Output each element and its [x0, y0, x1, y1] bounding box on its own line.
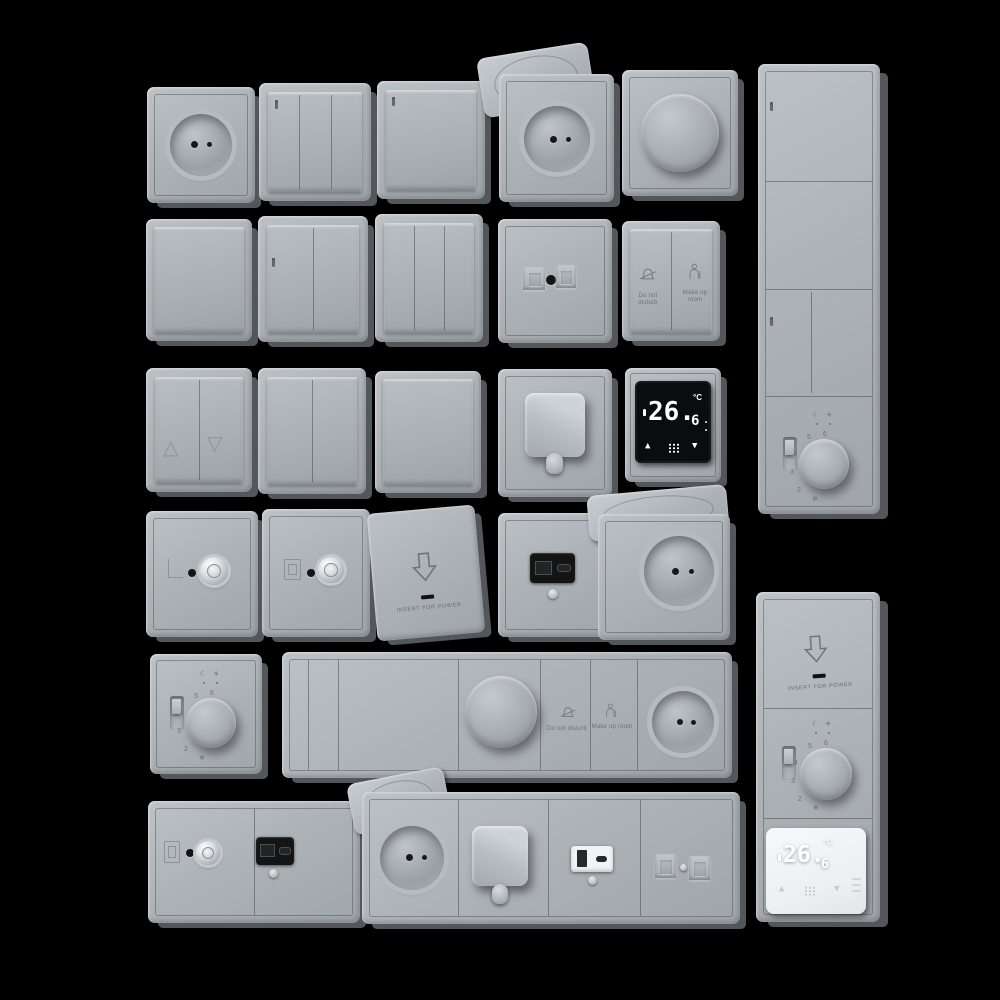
mode-dot: [828, 732, 830, 734]
night-mode-icon: ☾: [813, 411, 819, 419]
frost-icon: ❄: [812, 495, 818, 503]
make-up-room-icon: [686, 262, 704, 282]
dial-number: 4: [793, 451, 797, 458]
dial-thermostat-face: ☾ ☀ 6 5 4 3 2 ❄: [150, 660, 262, 770]
temperature-decimal: 6: [691, 413, 699, 429]
multi-gang-vertical-panel[interactable]: ☾ ☀ 6 5 4 3 2 ❄: [758, 64, 880, 514]
section-divider: [338, 660, 339, 770]
temp-up-button[interactable]: ▲: [645, 441, 650, 451]
dial-number: 4: [794, 760, 798, 767]
usb-module-white: [571, 846, 613, 872]
indicator-slot: [392, 97, 395, 106]
temperature-dial-knob[interactable]: [800, 748, 852, 800]
make-up-room-label: Make up room: [590, 724, 634, 731]
menu-dots-button[interactable]: [804, 886, 816, 896]
vent-slot: [852, 878, 861, 880]
do-not-disturb-label: Do not disturb: [545, 726, 589, 733]
section-divider: [308, 660, 309, 770]
temperature-dial-knob[interactable]: [799, 439, 849, 489]
rocker[interactable]: [386, 90, 476, 190]
indicator-slot: [275, 100, 278, 109]
make-up-room-label: Make up room: [676, 290, 714, 304]
dial-number: 2: [798, 796, 802, 803]
usb-c-port[interactable]: [279, 847, 291, 855]
temperature-decimal: 6: [821, 857, 829, 872]
dial-thermostat[interactable]: ☾ ☀ 6 5 4 3 2 ❄: [150, 654, 262, 774]
data-jack-port[interactable]: [689, 856, 710, 880]
socket-pin-hole: [406, 854, 413, 861]
rocker-divider: [811, 292, 812, 393]
switch-blank-1gang[interactable]: [146, 219, 252, 341]
shutter-up-icon: △: [163, 438, 178, 458]
status-dot: [705, 429, 707, 431]
dial-number: 5: [807, 434, 811, 441]
dial-number: 5: [194, 693, 198, 700]
section-divider: [254, 809, 255, 915]
square-marking: [284, 559, 301, 580]
data-jack-port[interactable]: [655, 854, 676, 878]
switch-3gang[interactable]: [375, 214, 483, 342]
usb-c-port[interactable]: [557, 564, 571, 572]
blank-plate[interactable]: [375, 371, 481, 493]
temp-down-button[interactable]: ▼: [692, 441, 697, 451]
digital-thermostat-white[interactable]: 26. 6 °C ▲ ▼: [766, 828, 866, 914]
dial-number: 6: [823, 431, 827, 438]
day-mode-icon: ☀: [826, 411, 832, 419]
socket-pin-hole: [566, 137, 571, 142]
digital-thermostat-black[interactable]: 26. 6 °C ▲ ▼: [625, 368, 721, 482]
dial-number: 3: [791, 778, 795, 785]
menu-dots-button[interactable]: [668, 443, 680, 453]
status-dot: [705, 421, 707, 423]
socket-pin-hole: [672, 568, 679, 575]
switch-2gang[interactable]: [258, 368, 366, 494]
insert-for-power-label: INSERT FOR POWER: [766, 680, 874, 694]
section-divider: [458, 800, 459, 916]
mode-dot: [816, 423, 818, 425]
multi-gang-horizontal-panel[interactable]: [362, 792, 740, 924]
night-mode-icon: ☾: [200, 670, 206, 678]
blank-cover: [383, 379, 473, 485]
data-jack-port[interactable]: [523, 267, 545, 290]
rocker-divider: [671, 232, 672, 330]
mode-dot: [203, 682, 205, 684]
data-jack-port[interactable]: [556, 265, 576, 288]
shutter-down-icon: ▽: [207, 434, 222, 454]
temperature-dial-knob[interactable]: [186, 698, 236, 748]
socket-pin-hole: [691, 720, 696, 725]
heating-flame-icon: [643, 409, 646, 416]
rocker-divider: [590, 660, 591, 770]
cable-outlet[interactable]: [498, 369, 612, 497]
rocker-divider: [414, 226, 415, 330]
socket-recess: [524, 106, 590, 172]
socket-recess: [652, 691, 714, 753]
switch-2gang[interactable]: [258, 216, 368, 342]
tv-sat-outlet[interactable]: [262, 509, 370, 637]
vent-slot: [852, 890, 861, 892]
square-marking: [164, 841, 180, 863]
do-not-disturb-label: Do not disturb: [629, 293, 667, 307]
screw: [588, 876, 597, 885]
socket-outlet[interactable]: [147, 87, 255, 203]
temperature-unit: °C: [824, 839, 832, 846]
dial-thermostat-section[interactable]: ☾ ☀ 6 5 4 3 2 ❄: [763, 401, 875, 511]
screw: [680, 864, 687, 871]
socket-pin-hole: [689, 569, 694, 574]
temperature-value: 26.: [648, 397, 695, 427]
rocker[interactable]: [268, 92, 362, 192]
dial-number: 4: [180, 710, 184, 717]
socket-outlet-lidded[interactable]: [499, 74, 614, 202]
temperature-unit: °C: [693, 393, 702, 402]
coax-hole[interactable]: [546, 275, 556, 285]
dial-number: 2: [184, 746, 188, 753]
cable-gland: [492, 884, 508, 904]
temp-up-button[interactable]: ▲: [779, 884, 784, 894]
section-divider: [458, 660, 459, 770]
f-connector[interactable]: [200, 557, 228, 585]
dial-number: 2: [797, 487, 801, 494]
section-divider: [540, 660, 541, 770]
dimmer-knob[interactable]: [641, 94, 719, 172]
rotary-dimmer[interactable]: [622, 70, 738, 196]
keycard-power-holder[interactable]: INSERT FOR POWER: [756, 594, 879, 710]
make-up-room-icon: [603, 702, 619, 720]
combo-tv-usb-plate[interactable]: [148, 801, 360, 923]
card-slot-led: [421, 594, 434, 599]
screw: [269, 869, 278, 878]
rocker-divider: [299, 95, 300, 189]
day-mode-icon: ☀: [213, 670, 219, 678]
usb-c-port[interactable]: [596, 856, 607, 862]
day-mode-icon: ☀: [825, 720, 831, 728]
cable-outlet-hood: [525, 393, 585, 457]
multi-gang-horizontal-panel[interactable]: Do not disturb Make up room: [282, 652, 732, 778]
section-divider: [766, 396, 872, 397]
frost-icon: ❄: [813, 804, 819, 812]
keycard-power-holder[interactable]: INSERT FOR POWER: [367, 505, 486, 642]
cable-gland: [546, 453, 563, 474]
section-divider: [766, 289, 872, 290]
temp-down-button[interactable]: ▼: [834, 884, 839, 894]
section-divider: [640, 800, 641, 916]
rocker-divider: [313, 228, 314, 330]
dial-number: 6: [824, 740, 828, 747]
indicator-slot: [272, 258, 275, 267]
usb-module: [530, 553, 575, 583]
dial-thermostat-section[interactable]: ☾ ☀ 6 5 4 3 2 ❄: [762, 710, 874, 820]
multi-gang-vertical-panel[interactable]: INSERT FOR POWER ☾ ☀ 6 5 4 3 2 ❄ 26. 6 °…: [756, 592, 880, 922]
usb-module: [256, 837, 294, 865]
heating-flame-icon: [778, 854, 781, 861]
tv-hole[interactable]: [307, 569, 315, 577]
rocker-divider: [312, 380, 313, 482]
do-not-disturb-icon: [559, 704, 577, 722]
section-divider: [637, 660, 638, 770]
dial-number: 5: [808, 743, 812, 750]
do-not-disturb-icon: [638, 265, 658, 285]
insert-card-arrow-icon: [801, 633, 831, 667]
media-socket[interactable]: [498, 219, 612, 343]
socket-pin-hole: [677, 719, 683, 725]
section-divider: [766, 181, 872, 182]
f-connector[interactable]: [196, 841, 220, 865]
socket-pin-hole: [422, 855, 427, 860]
hotel-service-switch[interactable]: Do not disturb Make up room: [622, 221, 720, 341]
rocker-divider: [331, 95, 332, 189]
temperature-value: 26.: [783, 842, 825, 868]
indicator-slot: [770, 317, 773, 326]
tv-hole[interactable]: [188, 569, 196, 577]
switch-3gang[interactable]: [259, 83, 371, 201]
usb-a-port[interactable]: [260, 844, 275, 857]
section-divider: [548, 800, 549, 916]
dial-number: 3: [177, 728, 181, 735]
socket-outlet-lidded[interactable]: [598, 514, 730, 640]
socket-recess: [170, 114, 232, 176]
socket-pin-hole: [191, 141, 198, 148]
f-connector[interactable]: [318, 557, 344, 583]
socket-pin-hole: [550, 136, 557, 143]
dial-number: 6: [210, 690, 214, 697]
frost-icon: ❄: [199, 754, 205, 762]
mode-dot: [815, 732, 817, 734]
rocker-divider: [199, 380, 200, 480]
tv-hole[interactable]: [186, 849, 194, 857]
l-marking: [168, 559, 183, 578]
dimmer-knob[interactable]: [465, 676, 537, 748]
shutter-switch[interactable]: △ ▽: [146, 368, 252, 492]
usb-a-port[interactable]: [577, 850, 587, 867]
socket-recess: [644, 536, 714, 606]
insert-for-power-label: INSERT FOR POWER: [379, 601, 479, 616]
tv-sat-outlet[interactable]: [146, 511, 258, 637]
card-slot-led: [813, 674, 826, 679]
night-mode-icon: ☾: [812, 720, 818, 728]
screw: [548, 589, 558, 599]
vent-slot: [852, 884, 861, 886]
cable-outlet-hood: [472, 826, 528, 886]
thermostat-screen: 26. 6 °C ▲ ▼: [635, 381, 711, 463]
usb-a-port[interactable]: [535, 561, 552, 575]
dial-number: 3: [790, 469, 794, 476]
rocker[interactable]: [154, 227, 244, 333]
switch-collection-render: ☾ ☀ 6 5 4 3 2 ❄: [0, 0, 1000, 1000]
mode-dot: [216, 682, 218, 684]
rocker-divider: [444, 226, 445, 330]
rocker[interactable]: [384, 223, 474, 333]
mode-dot: [829, 423, 831, 425]
insert-card-arrow-icon: [408, 550, 441, 586]
switch-1gang[interactable]: [377, 81, 485, 199]
indicator-slot: [770, 102, 773, 111]
socket-pin-hole: [207, 142, 212, 147]
